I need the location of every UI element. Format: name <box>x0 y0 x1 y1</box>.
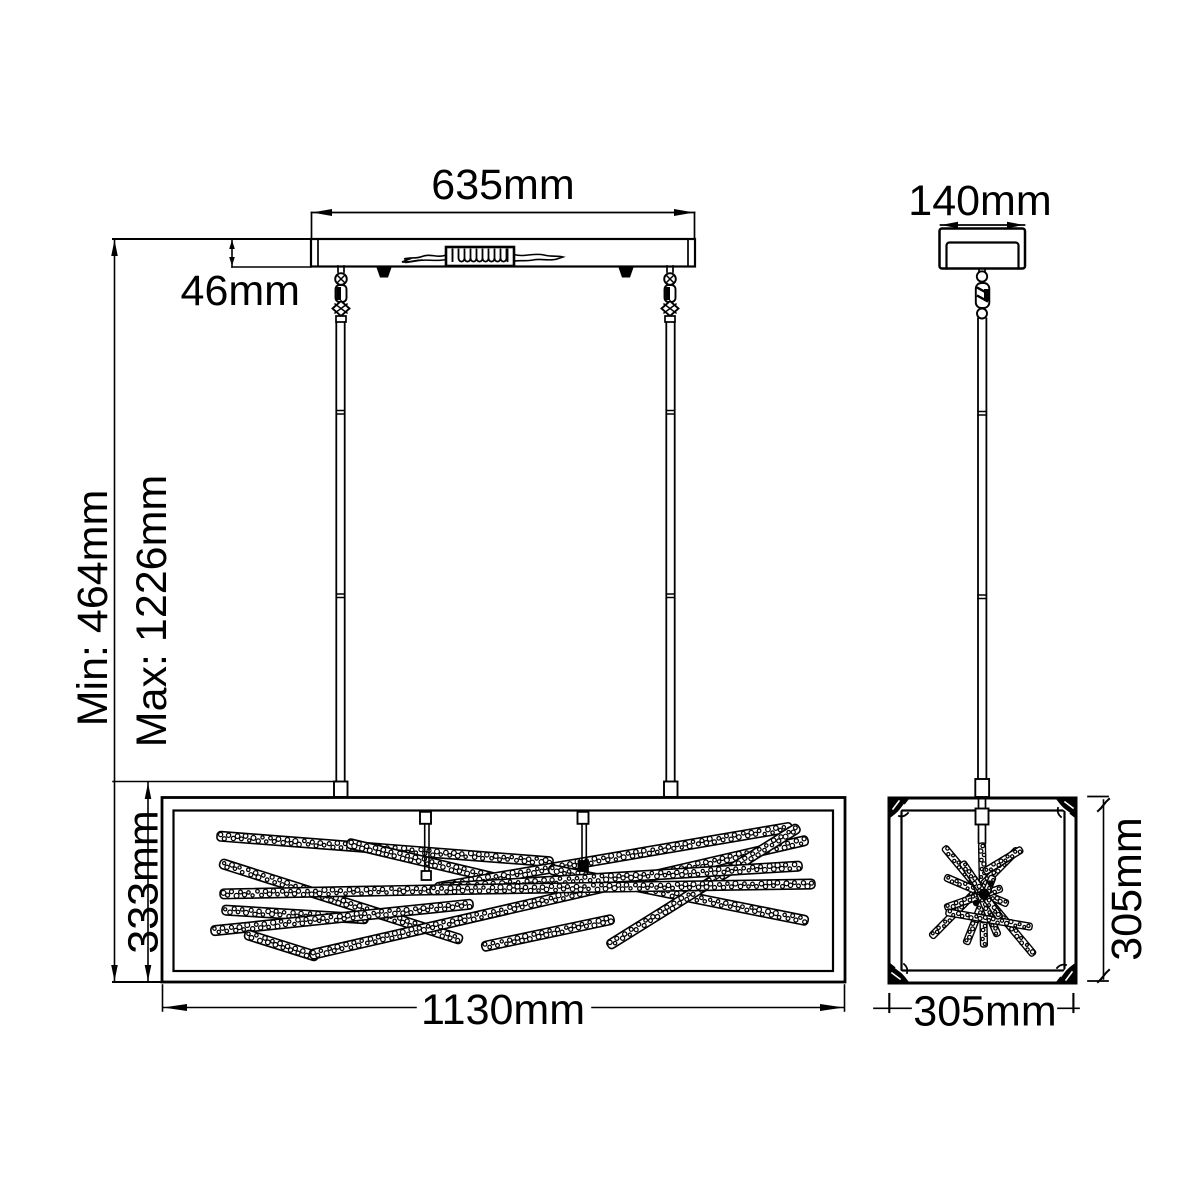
svg-text:305mm: 305mm <box>913 988 1056 1036</box>
svg-text:Min: 464mm: Min: 464mm <box>69 490 117 727</box>
svg-text:140mm: 140mm <box>908 177 1051 225</box>
svg-text:Max: 1226mm: Max: 1226mm <box>128 475 176 747</box>
svg-text:46mm: 46mm <box>181 267 300 315</box>
svg-text:305mm: 305mm <box>1103 817 1151 960</box>
svg-text:333mm: 333mm <box>120 810 168 953</box>
svg-text:1130mm: 1130mm <box>421 986 585 1034</box>
svg-text:635mm: 635mm <box>431 161 574 209</box>
